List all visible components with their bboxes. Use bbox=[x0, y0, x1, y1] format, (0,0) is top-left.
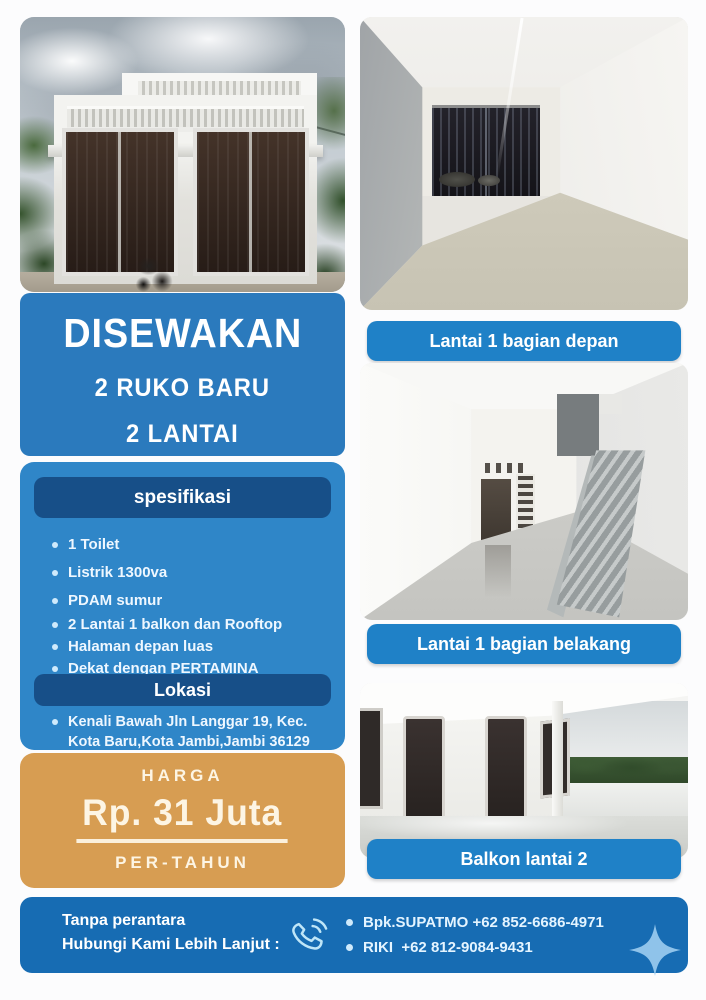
location-header: Lokasi bbox=[34, 674, 331, 706]
photo-caption: Balkon lantai 2 bbox=[367, 839, 681, 879]
price-label: HARGA bbox=[141, 766, 223, 786]
photo-floor1-back: Lantai 1 bagian belakang bbox=[360, 363, 688, 664]
balcony-parapet-art bbox=[557, 783, 688, 820]
contact-entry: Bpk.SUPATMO +62 852-6686-4971 bbox=[346, 910, 604, 935]
spec-item: PDAM sumur bbox=[52, 592, 335, 609]
spec-item: 1 Toilet bbox=[52, 536, 335, 553]
balcony-photo bbox=[360, 683, 688, 858]
wall-corner-art bbox=[552, 701, 563, 824]
building-art bbox=[54, 73, 317, 284]
poster-subtitle-1: 2 RUKO BARU bbox=[95, 374, 270, 403]
interior-back-photo bbox=[360, 363, 688, 620]
poster-subtitle-2: 2 LANTAI bbox=[126, 420, 239, 449]
phone-icon bbox=[288, 912, 334, 958]
address: Kenali Bawah Jln Langgar 19, Kec. Kota B… bbox=[52, 712, 333, 752]
bullet-dot-icon bbox=[52, 666, 58, 672]
price-period: PER-TAHUN bbox=[115, 853, 250, 873]
bullet-dot-icon bbox=[52, 598, 58, 604]
rental-flyer: DISEWAKAN 2 RUKO BARU 2 LANTAI spesifika… bbox=[0, 0, 706, 1000]
photo-caption: Lantai 1 bagian depan bbox=[367, 321, 681, 361]
interior-front-photo bbox=[360, 17, 688, 310]
bullet-dot-icon bbox=[346, 919, 353, 926]
specification-panel: spesifikasi 1 Toilet Listrik 1300va PDAM… bbox=[20, 462, 345, 750]
spec-list: 1 Toilet Listrik 1300va PDAM sumur 2 Lan… bbox=[52, 536, 335, 677]
contact-list: Bpk.SUPATMO +62 852-6686-4971 RIKI +62 8… bbox=[346, 910, 604, 960]
sparkle-icon bbox=[628, 923, 682, 977]
contact-intro-line2: Hubungi Kami Lebih Lanjut : bbox=[62, 933, 280, 957]
shutter-door-right-art bbox=[193, 128, 309, 276]
exterior-building-photo bbox=[20, 17, 345, 292]
photo-caption: Lantai 1 bagian belakang bbox=[367, 624, 681, 664]
bullet-dot-icon bbox=[52, 719, 58, 725]
floor-reflection-art bbox=[485, 545, 511, 596]
spec-item: 2 Lantai 1 balkon dan Rooftop bbox=[52, 616, 335, 633]
contact-intro: Tanpa perantara Hubungi Kami Lebih Lanju… bbox=[62, 909, 280, 957]
contact-bar: Tanpa perantara Hubungi Kami Lebih Lanju… bbox=[20, 897, 688, 973]
spec-header: spesifikasi bbox=[34, 477, 331, 518]
motorcycle-art bbox=[132, 254, 184, 292]
title-box: DISEWAKAN 2 RUKO BARU 2 LANTAI bbox=[20, 293, 345, 456]
address-text: Kenali Bawah Jln Langgar 19, Kec. Kota B… bbox=[68, 712, 310, 752]
contact-intro-line1: Tanpa perantara bbox=[62, 909, 280, 933]
photo-floor1-front: Lantai 1 bagian depan bbox=[360, 17, 688, 361]
bullet-dot-icon bbox=[52, 542, 58, 548]
price-value: Rp. 31 Juta bbox=[77, 792, 289, 843]
poster-title: DISEWAKAN bbox=[63, 310, 302, 357]
photo-balcony: Balkon lantai 2 bbox=[360, 683, 688, 879]
vent-slats-art bbox=[485, 463, 528, 473]
contact-entry: RIKI +62 812-9084-9431 bbox=[346, 935, 604, 960]
bullet-dot-icon bbox=[346, 944, 353, 951]
dark-window-art bbox=[360, 708, 383, 810]
stair-landing-art bbox=[557, 394, 600, 456]
bullet-dot-icon bbox=[52, 570, 58, 576]
bullet-dot-icon bbox=[52, 644, 58, 650]
price-panel: HARGA Rp. 31 Juta PER-TAHUN bbox=[20, 753, 345, 888]
bullet-dot-icon bbox=[52, 622, 58, 628]
spec-item: Halaman depan luas bbox=[52, 638, 335, 655]
spec-item: Listrik 1300va bbox=[52, 564, 335, 581]
